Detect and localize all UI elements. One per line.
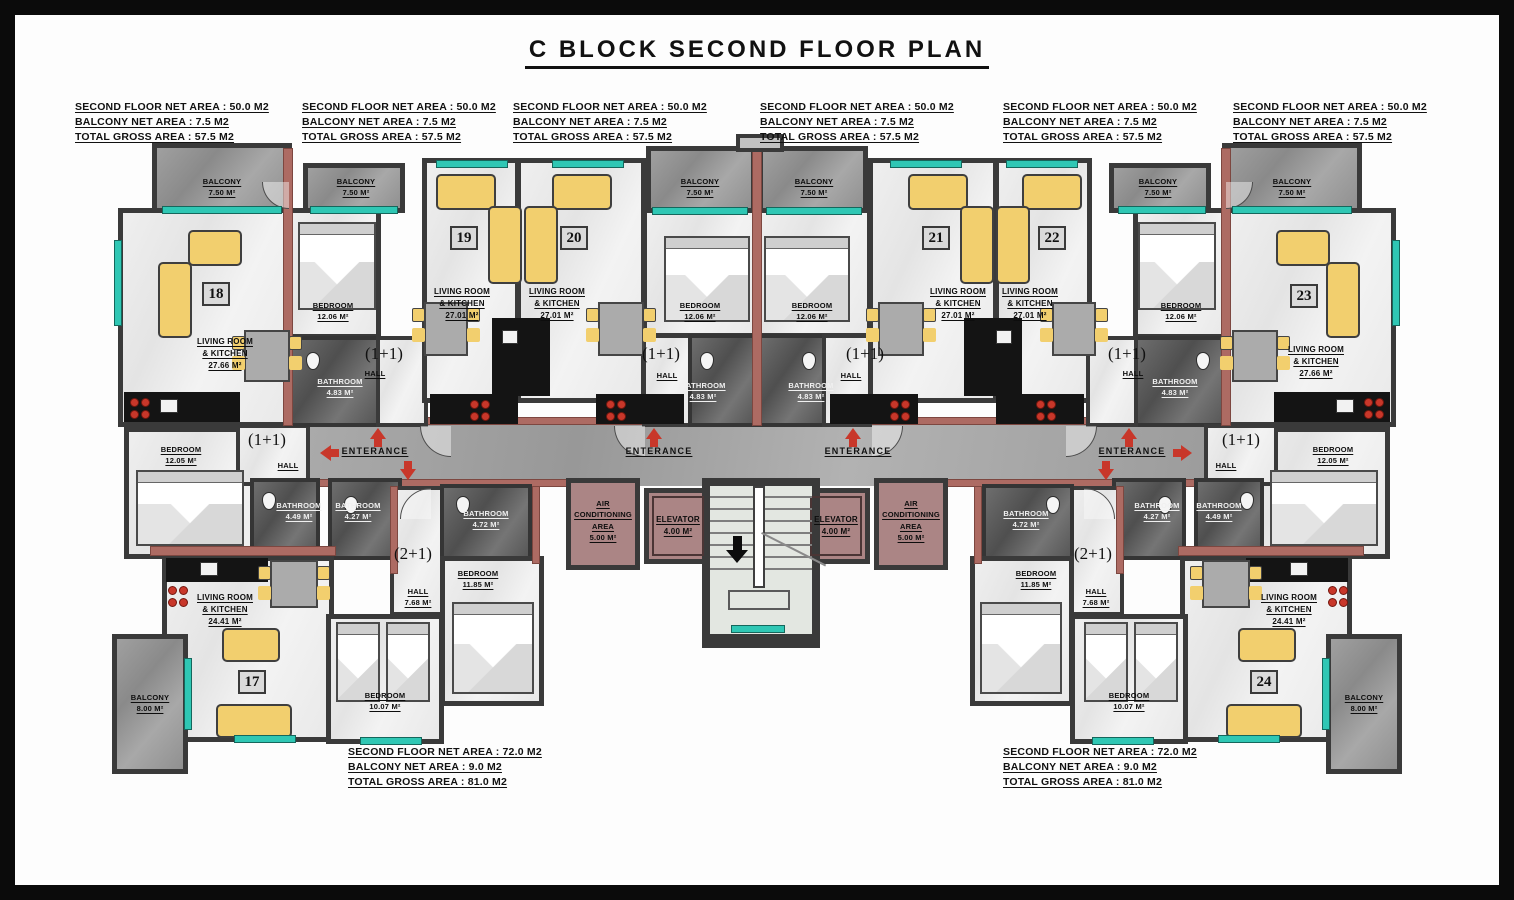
room-label-elevator: ELEVATOR4.00 M² <box>802 514 870 538</box>
unit-type-label: (1+1) <box>248 430 286 450</box>
summary-net: SECOND FLOOR NET AREA : 50.0 M2 <box>302 100 496 115</box>
bed <box>1270 470 1378 546</box>
sofa <box>216 704 292 738</box>
unit-type-label: (1+1) <box>1108 344 1146 364</box>
stove-icon <box>1036 400 1055 421</box>
dining-table <box>598 302 644 356</box>
summary-balcony: BALCONY NET AREA : 7.5 M2 <box>1003 115 1197 130</box>
bed <box>298 222 376 310</box>
bed <box>136 470 244 546</box>
room-label-bathroom: BATHROOM4.72 M² <box>981 508 1071 531</box>
room-label-bedroom: BEDROOM12.06 M² <box>288 300 378 323</box>
sofa <box>960 206 994 284</box>
sofa <box>1238 628 1296 662</box>
room-label-living: LIVING ROOM& KITCHEN27.66 M² <box>180 336 270 372</box>
window <box>890 160 962 168</box>
window <box>1118 206 1206 214</box>
window <box>1092 737 1154 745</box>
room-label-hall: HALL <box>345 368 405 379</box>
unit-number-22: 22 <box>1038 226 1066 250</box>
summary-unit19: SECOND FLOOR NET AREA : 50.0 M2 BALCONY … <box>302 100 496 146</box>
entrance-arrow-down-icon <box>400 460 416 480</box>
room-label-hall: HALL7.68 M² <box>388 586 448 609</box>
stove-icon <box>130 398 149 419</box>
bed <box>980 602 1062 694</box>
window <box>436 160 508 168</box>
room-label-living: LIVING ROOM& KITCHEN27.01 M² <box>512 286 602 322</box>
window <box>766 207 862 215</box>
kitchen-sink <box>1290 562 1308 576</box>
window <box>652 207 748 215</box>
accent-wall <box>532 486 540 564</box>
summary-gross: TOTAL GROSS AREA : 57.5 M2 <box>1003 130 1197 145</box>
room-label-ac: AIRCONDITIONINGAREA5.00 M² <box>566 498 640 543</box>
room-label-bedroom: BEDROOM12.06 M² <box>655 300 745 323</box>
summary-gross: TOTAL GROSS AREA : 57.5 M2 <box>1233 130 1427 145</box>
room-label-hall: HALL <box>640 370 694 381</box>
floor-plan-canvas: C BLOCK SECOND FLOOR PLAN SECOND FLOOR N… <box>0 0 1514 900</box>
summary-gross: TOTAL GROSS AREA : 81.0 M2 <box>1003 775 1197 790</box>
room-label-bathroom: BATHROOM4.27 M² <box>1112 500 1202 523</box>
accent-wall <box>150 546 336 556</box>
entrance-arrow-up-icon <box>370 428 386 448</box>
window <box>360 737 422 745</box>
room-label-balcony: BALCONY7.50 M² <box>177 176 267 199</box>
summary-net: SECOND FLOOR NET AREA : 50.0 M2 <box>1233 100 1427 115</box>
sofa <box>1326 262 1360 338</box>
dining-table <box>1202 560 1250 608</box>
stove-icon <box>890 400 909 421</box>
room-label-balcony: BALCONY8.00 M² <box>1319 692 1409 715</box>
summary-balcony: BALCONY NET AREA : 7.5 M2 <box>760 115 954 130</box>
sofa <box>524 206 558 284</box>
summary-unit20: SECOND FLOOR NET AREA : 50.0 M2 BALCONY … <box>513 100 707 146</box>
summary-gross: TOTAL GROSS AREA : 57.5 M2 <box>75 130 269 145</box>
kitchen-sink <box>200 562 218 576</box>
room-label-bathroom: BATHROOM4.83 M² <box>766 380 856 403</box>
unit-type-label: (1+1) <box>846 344 884 364</box>
entrance-arrow-down-icon <box>1098 460 1114 480</box>
room-label-living: LIVING ROOM& KITCHEN24.41 M² <box>1244 592 1334 628</box>
entrance-arrow-up-icon <box>646 428 662 448</box>
room-label-bathroom: BATHROOM4.83 M² <box>658 380 748 403</box>
sofa <box>158 262 192 338</box>
accent-wall <box>1178 546 1364 556</box>
unit-type-label: (2+1) <box>394 544 432 564</box>
summary-balcony: BALCONY NET AREA : 7.5 M2 <box>302 115 496 130</box>
unit-number-24: 24 <box>1250 670 1278 694</box>
window <box>1232 206 1352 214</box>
room-label-bedroom: BEDROOM12.05 M² <box>136 444 226 467</box>
entrance-arrow-right-icon <box>1172 445 1192 461</box>
room-label-balcony: BALCONY7.50 M² <box>769 176 859 199</box>
sofa <box>996 206 1030 284</box>
summary-net: SECOND FLOOR NET AREA : 50.0 M2 <box>513 100 707 115</box>
window <box>552 160 624 168</box>
summary-unit21: SECOND FLOOR NET AREA : 50.0 M2 BALCONY … <box>760 100 954 146</box>
stove-icon <box>606 400 625 421</box>
unit-type-label: (2+1) <box>1074 544 1112 564</box>
summary-net: SECOND FLOOR NET AREA : 72.0 M2 <box>1003 745 1197 760</box>
window <box>162 206 282 214</box>
sofa <box>488 206 522 284</box>
summary-unit22: SECOND FLOOR NET AREA : 50.0 M2 BALCONY … <box>1003 100 1197 146</box>
room-label-bedroom: BEDROOM12.06 M² <box>1136 300 1226 323</box>
room-label-hall: HALL <box>1103 368 1163 379</box>
sofa <box>908 174 968 210</box>
summary-balcony: BALCONY NET AREA : 9.0 M2 <box>348 760 542 775</box>
summary-gross: TOTAL GROSS AREA : 57.5 M2 <box>513 130 707 145</box>
summary-net: SECOND FLOOR NET AREA : 50.0 M2 <box>1003 100 1197 115</box>
window <box>310 206 398 214</box>
sofa <box>188 230 242 266</box>
unit-number-18: 18 <box>202 282 230 306</box>
sofa <box>1226 704 1302 738</box>
dining-table <box>270 560 318 608</box>
window <box>1218 735 1280 743</box>
window <box>234 735 296 743</box>
room-label-balcony: BALCONY7.50 M² <box>655 176 745 199</box>
room-label-living: LIVING ROOM& KITCHEN27.01 M² <box>417 286 507 322</box>
summary-unit18: SECOND FLOOR NET AREA : 50.0 M2 BALCONY … <box>75 100 269 146</box>
stove-icon <box>470 400 489 421</box>
stair-landing <box>728 590 790 610</box>
unit-number-17: 17 <box>238 670 266 694</box>
summary-net: SECOND FLOOR NET AREA : 50.0 M2 <box>760 100 954 115</box>
stair-divider <box>753 486 765 588</box>
sofa <box>1022 174 1082 210</box>
summary-balcony: BALCONY NET AREA : 9.0 M2 <box>1003 760 1197 775</box>
kitchen-counter <box>964 318 1022 396</box>
room-label-bedroom: BEDROOM10.07 M² <box>1084 690 1174 713</box>
stove-icon <box>1364 398 1383 419</box>
sofa <box>552 174 612 210</box>
bed <box>452 602 534 694</box>
room-label-elevator: ELEVATOR4.00 M² <box>644 514 712 538</box>
summary-unit17: SECOND FLOOR NET AREA : 72.0 M2 BALCONY … <box>348 745 542 791</box>
room-label-bedroom: BEDROOM12.06 M² <box>767 300 857 323</box>
summary-balcony: BALCONY NET AREA : 7.5 M2 <box>1233 115 1427 130</box>
window <box>114 240 122 326</box>
room-label-bathroom: BATHROOM4.83 M² <box>1130 376 1220 399</box>
kitchen-sink <box>1336 399 1354 413</box>
room-label-ac: AIRCONDITIONINGAREA5.00 M² <box>874 498 948 543</box>
room-label-balcony: BALCONY7.50 M² <box>1247 176 1337 199</box>
room-label-bathroom: BATHROOM4.27 M² <box>313 500 403 523</box>
unit-type-label: (1+1) <box>365 344 403 364</box>
room-label-balcony: BALCONY7.50 M² <box>311 176 401 199</box>
room-label-hall: HALL7.68 M² <box>1066 586 1126 609</box>
summary-balcony: BALCONY NET AREA : 7.5 M2 <box>75 115 269 130</box>
kitchen-counter <box>492 318 550 396</box>
unit-number-20: 20 <box>560 226 588 250</box>
room-label-hall: HALL <box>1196 460 1256 471</box>
room-label-hall: HALL <box>824 370 878 381</box>
accent-wall <box>752 140 762 426</box>
unit-type-label: (1+1) <box>1222 430 1260 450</box>
summary-unit24: SECOND FLOOR NET AREA : 72.0 M2 BALCONY … <box>1003 745 1197 791</box>
room-label-bathroom: BATHROOM4.72 M² <box>441 508 531 531</box>
sofa <box>436 174 496 210</box>
entrance-arrow-up-icon <box>1121 428 1137 448</box>
summary-net: SECOND FLOOR NET AREA : 72.0 M2 <box>348 745 542 760</box>
unit-type-label: (1+1) <box>642 344 680 364</box>
summary-gross: TOTAL GROSS AREA : 57.5 M2 <box>760 130 954 145</box>
room-label-bedroom: BEDROOM12.05 M² <box>1288 444 1378 467</box>
summary-unit23: SECOND FLOOR NET AREA : 50.0 M2 BALCONY … <box>1233 100 1427 146</box>
summary-gross: TOTAL GROSS AREA : 57.5 M2 <box>302 130 496 145</box>
unit-number-23: 23 <box>1290 284 1318 308</box>
room-label-balcony: BALCONY8.00 M² <box>105 692 195 715</box>
sofa <box>222 628 280 662</box>
entrance-arrow-left-icon <box>320 445 340 461</box>
stairs-down-arrow-icon <box>733 536 742 551</box>
unit-number-19: 19 <box>450 226 478 250</box>
sofa <box>1276 230 1330 266</box>
page-title: C BLOCK SECOND FLOOR PLAN <box>0 36 1514 64</box>
summary-net: SECOND FLOOR NET AREA : 50.0 M2 <box>75 100 269 115</box>
window <box>1006 160 1078 168</box>
window <box>1392 240 1400 326</box>
room-label-bathroom: BATHROOM4.83 M² <box>295 376 385 399</box>
room-label-hall: HALL <box>258 460 318 471</box>
room-label-living: LIVING ROOM& KITCHEN24.41 M² <box>180 592 270 628</box>
window <box>731 625 785 633</box>
summary-balcony: BALCONY NET AREA : 7.5 M2 <box>513 115 707 130</box>
stairs-down-arrow-icon <box>726 550 748 563</box>
kitchen-sink <box>502 330 518 344</box>
bed <box>1138 222 1216 310</box>
room-label-bedroom: BEDROOM10.07 M² <box>340 690 430 713</box>
kitchen-sink <box>996 330 1012 344</box>
kitchen-sink <box>160 399 178 413</box>
unit-number-21: 21 <box>922 226 950 250</box>
entrance-arrow-up-icon <box>845 428 861 448</box>
summary-gross: TOTAL GROSS AREA : 81.0 M2 <box>348 775 542 790</box>
room-label-living: LIVING ROOM& KITCHEN27.01 M² <box>985 286 1075 322</box>
room-label-balcony: BALCONY7.50 M² <box>1113 176 1203 199</box>
room-label-living: LIVING ROOM& KITCHEN27.66 M² <box>1271 344 1361 380</box>
